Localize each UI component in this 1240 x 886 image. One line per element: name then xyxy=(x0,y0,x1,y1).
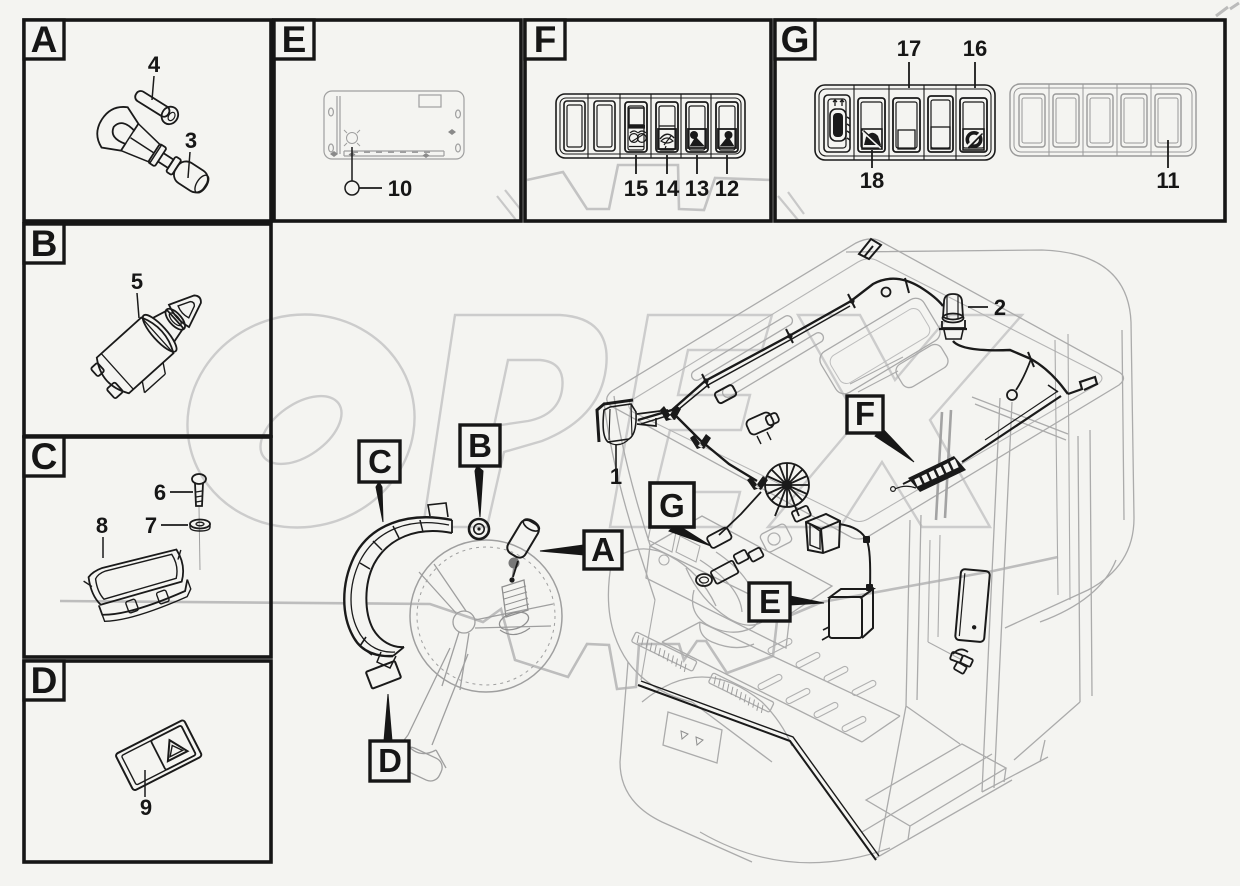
svg-text:1: 1 xyxy=(610,464,622,489)
svg-text:C: C xyxy=(368,443,392,480)
svg-text:A: A xyxy=(31,19,58,60)
svg-text:A: A xyxy=(591,531,615,568)
svg-text:F: F xyxy=(855,395,875,432)
svg-text:8: 8 xyxy=(96,513,108,538)
svg-text:E: E xyxy=(759,583,781,620)
svg-text:G: G xyxy=(781,19,810,60)
svg-text:11: 11 xyxy=(1156,168,1179,193)
svg-text:12: 12 xyxy=(715,176,739,201)
svg-text:B: B xyxy=(468,427,492,464)
svg-text:4: 4 xyxy=(148,52,161,77)
svg-text:F: F xyxy=(534,19,557,60)
svg-text:7: 7 xyxy=(145,513,157,538)
svg-text:G: G xyxy=(659,487,685,524)
svg-text:5: 5 xyxy=(131,269,143,294)
svg-text:16: 16 xyxy=(963,36,987,61)
svg-text:D: D xyxy=(31,660,58,701)
svg-text:18: 18 xyxy=(860,168,884,193)
svg-text:14: 14 xyxy=(655,176,680,201)
svg-text:2: 2 xyxy=(994,295,1006,320)
svg-text:15: 15 xyxy=(624,176,648,201)
svg-text:3: 3 xyxy=(185,128,197,153)
svg-text:D: D xyxy=(378,742,402,779)
svg-text:13: 13 xyxy=(685,176,709,201)
svg-text:10: 10 xyxy=(388,176,412,201)
svg-text:E: E xyxy=(282,19,307,60)
svg-text:6: 6 xyxy=(154,480,166,505)
svg-text:C: C xyxy=(31,436,58,477)
svg-text:17: 17 xyxy=(897,36,921,61)
svg-text:B: B xyxy=(31,223,58,264)
svg-text:9: 9 xyxy=(140,795,152,820)
